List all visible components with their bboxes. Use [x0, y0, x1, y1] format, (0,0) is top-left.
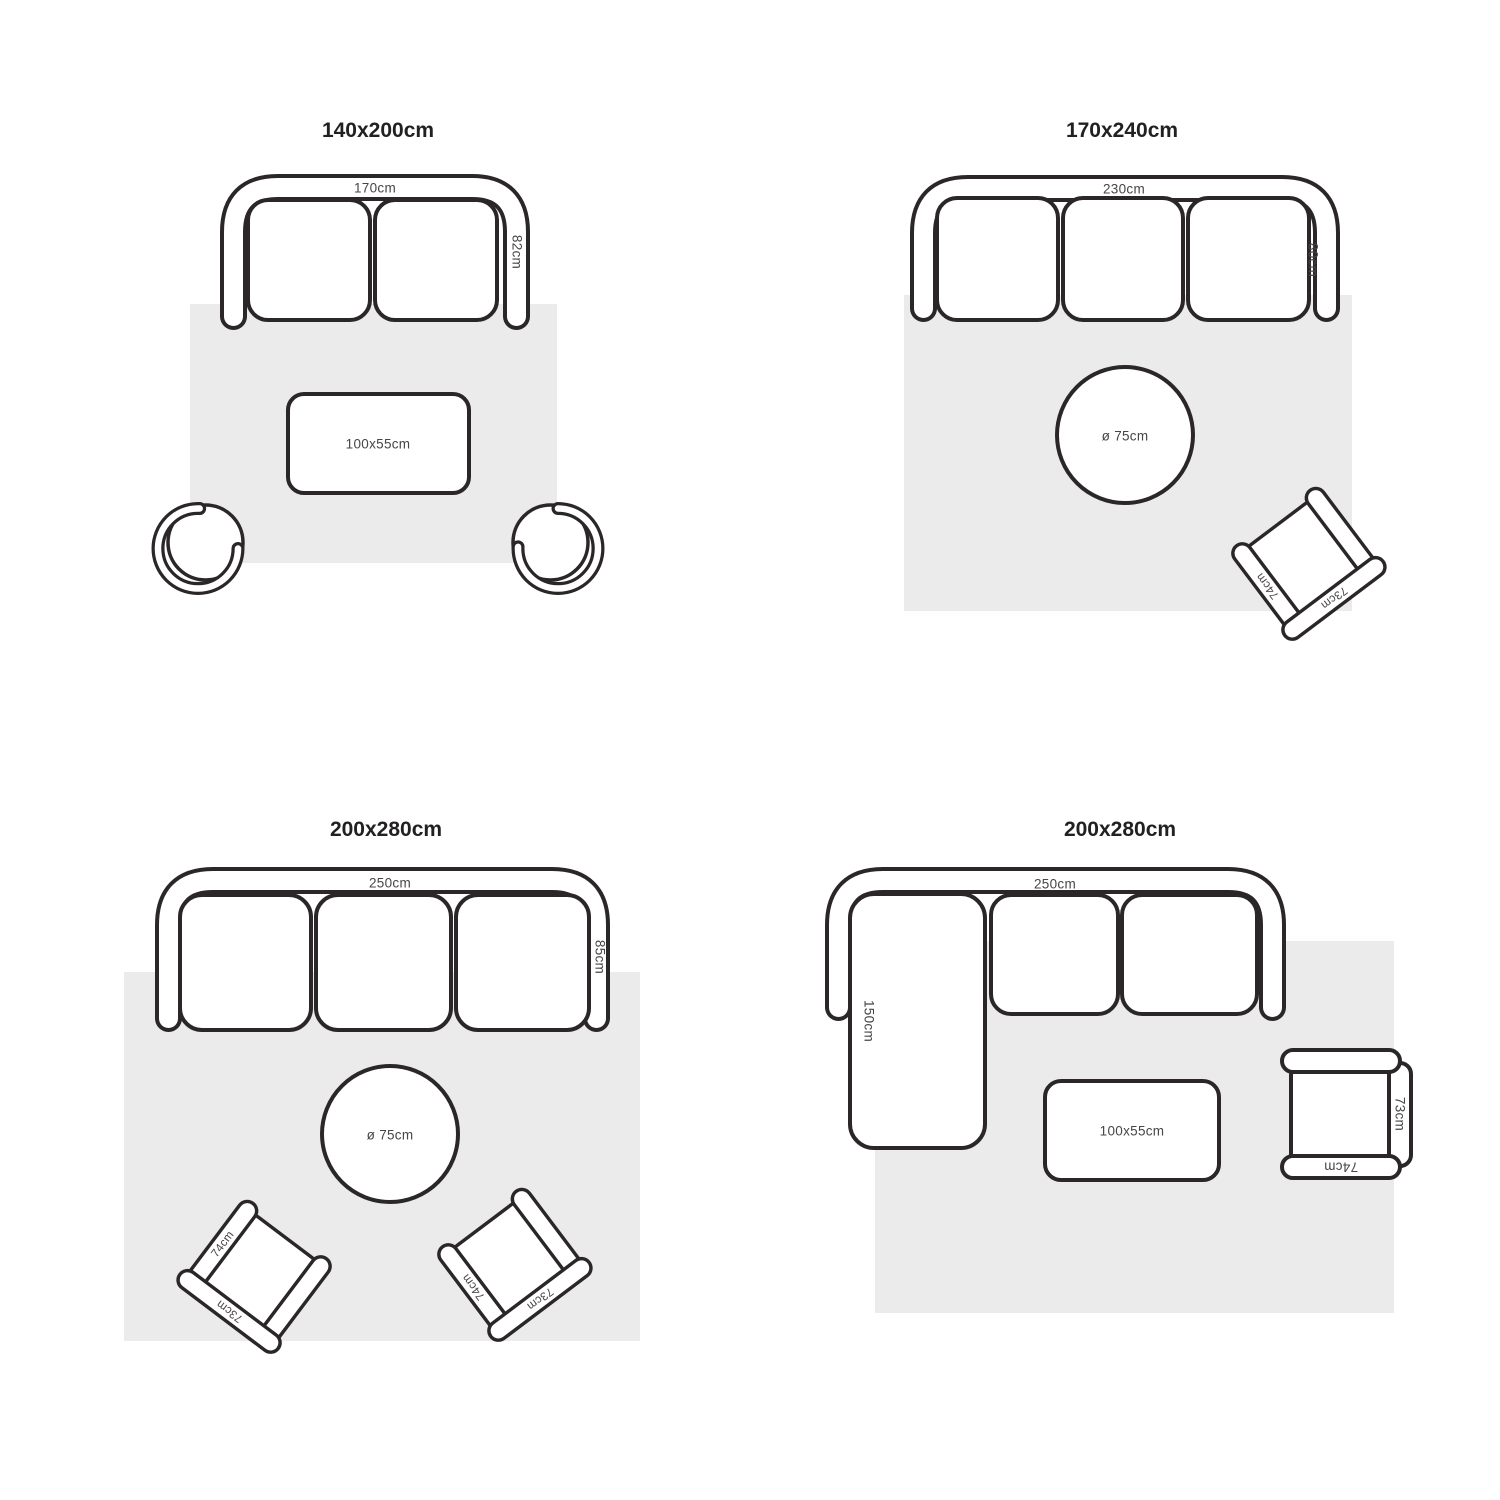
- coffee-table-size-label: 100x55cm: [346, 437, 411, 452]
- armchair: 73cm 74cm: [1280, 1048, 1413, 1180]
- armchair-seat: [1289, 1061, 1399, 1168]
- sofa-chaise-length-label: 150cm: [862, 1000, 877, 1042]
- panel-title: 200x280cm: [330, 818, 442, 842]
- armchair-arm: [1280, 1048, 1402, 1074]
- sofa-width-label: 250cm: [369, 876, 411, 891]
- panel-title: 200x280cm: [1064, 818, 1176, 842]
- coffee-table-size-label: 100x55cm: [1100, 1124, 1165, 1139]
- sofa-depth-label: 85cm: [593, 940, 608, 974]
- sofa-depth-label: 82cm: [510, 235, 525, 269]
- sofa-cushion: [1063, 198, 1183, 320]
- sofa-cushion: [991, 895, 1118, 1014]
- sofa-cushion: [456, 895, 589, 1030]
- round-table-diameter-label: ø 75cm: [1102, 429, 1149, 444]
- armchair-width-label: 73cm: [1393, 1097, 1408, 1131]
- three-seat-sofa: [910, 175, 1340, 325]
- sofa-width-label: 170cm: [354, 181, 396, 196]
- two-seat-sofa: [220, 174, 530, 330]
- sofa-cushion: [316, 895, 451, 1030]
- sofa-cushion: [937, 198, 1058, 320]
- round-chair-left: [145, 492, 263, 610]
- panel-title: 140x200cm: [322, 119, 434, 143]
- sofa-cushion: [180, 895, 311, 1030]
- sofa-cushion: [248, 200, 370, 320]
- sofa-depth-label: 80cm: [1306, 243, 1321, 277]
- rug-size-guide: 140x200cm 170cm 82cm 100x55cm 170x240cm: [0, 0, 1500, 1500]
- sofa-cushion: [375, 200, 497, 320]
- round-table-diameter-label: ø 75cm: [367, 1128, 414, 1143]
- three-seat-sofa: [155, 867, 610, 1035]
- sofa-width-label: 250cm: [1034, 877, 1076, 892]
- sofa-cushion: [1188, 198, 1309, 320]
- panel-title: 170x240cm: [1066, 119, 1178, 143]
- sofa-cushion: [1122, 895, 1257, 1014]
- sofa-width-label: 230cm: [1103, 182, 1145, 197]
- armchair-depth-label: 74cm: [1324, 1160, 1358, 1175]
- round-chair-right: [499, 492, 617, 610]
